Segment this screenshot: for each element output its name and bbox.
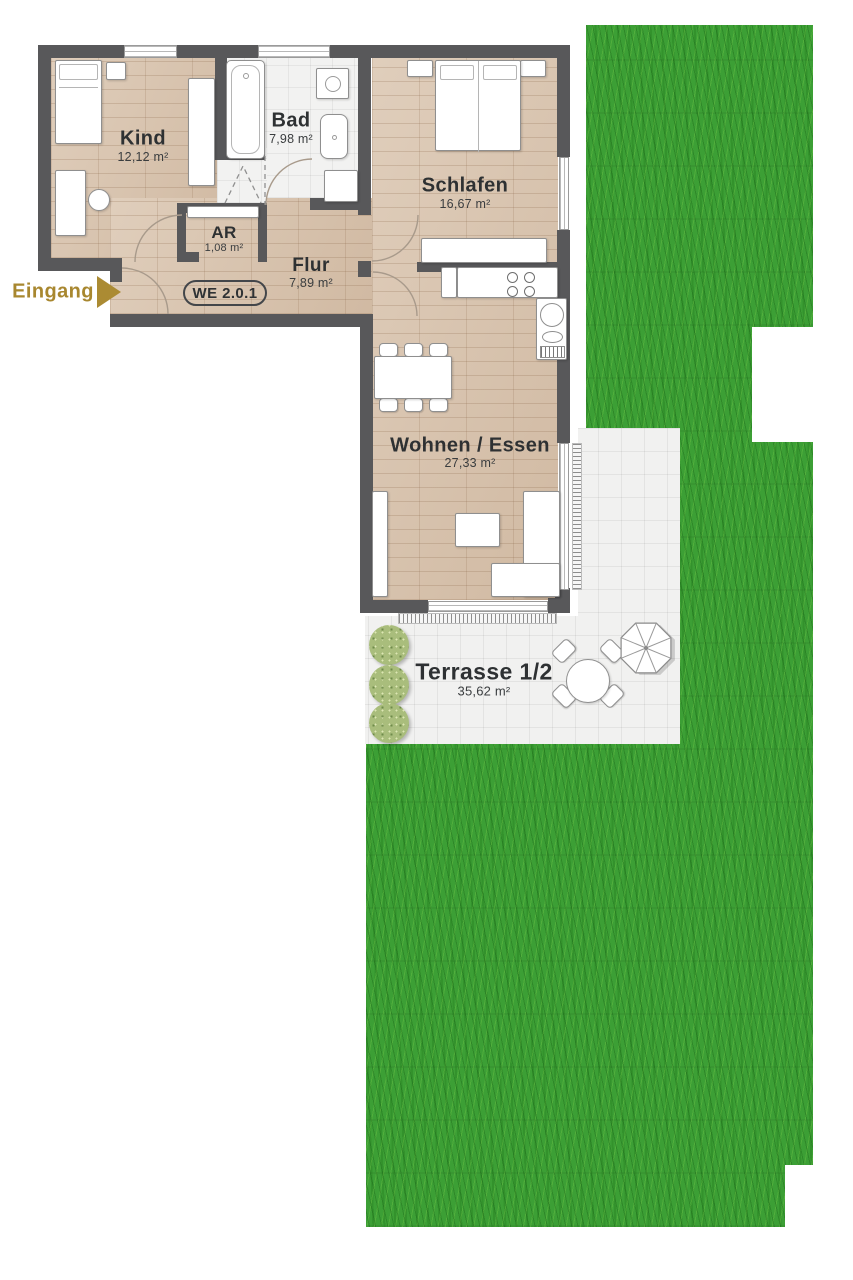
schlafen-door-arc — [372, 215, 418, 261]
floor-plan: Kind 12,12 m² Bad 7,98 m² Schlafen 16,67… — [0, 0, 853, 1280]
entrance-arrow-icon — [97, 276, 121, 308]
room-area-wohnen: 27,33 m² — [445, 456, 496, 470]
room-label-kind: Kind — [120, 128, 166, 151]
room-label-schlafen: Schlafen — [422, 175, 509, 198]
room-area-bad: 7,98 m² — [269, 132, 313, 146]
wohnen-door-arc — [373, 272, 417, 316]
unit-badge: WE 2.0.1 — [183, 280, 267, 306]
room-label-ar: AR — [211, 223, 236, 243]
room-area-schlafen: 16,67 m² — [440, 197, 491, 211]
entrance-label: Eingang — [12, 281, 94, 304]
room-label-terrasse: Terrasse 1/2 — [415, 659, 552, 686]
bad-door-arc — [266, 159, 312, 205]
kind-door-arc — [135, 215, 182, 262]
room-area-terrasse: 35,62 m² — [458, 684, 511, 699]
room-label-bad: Bad — [272, 110, 311, 133]
room-label-wohnen: Wohnen / Essen — [390, 435, 550, 458]
room-area-flur: 7,89 m² — [289, 276, 333, 290]
shower-slope-mark — [225, 166, 261, 203]
room-label-flur: Flur — [292, 255, 330, 277]
room-area-kind: 12,12 m² — [118, 150, 169, 164]
entry-door-arc — [122, 268, 168, 314]
room-area-ar: 1,08 m² — [205, 242, 244, 254]
